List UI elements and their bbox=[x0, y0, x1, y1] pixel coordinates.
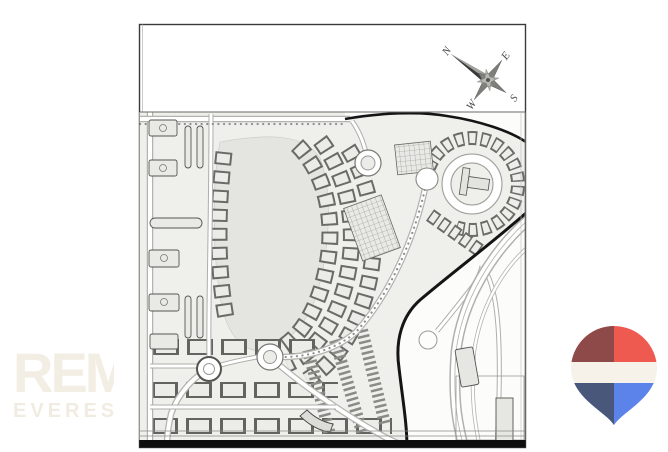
remax-balloon-icon bbox=[566, 322, 662, 428]
plan-bottom-bar bbox=[140, 440, 527, 448]
plan-content bbox=[140, 112, 529, 448]
agency-watermark: REM EVEREST bbox=[13, 350, 114, 422]
balloon-red-shadow bbox=[566, 322, 614, 362]
balloon-white-band bbox=[566, 362, 662, 383]
balloon-blue-shadow bbox=[566, 383, 614, 428]
watermark-agency-text: EVEREST bbox=[13, 400, 114, 422]
cul-de-sac-loop bbox=[442, 154, 502, 214]
watermark-brand-text: REM bbox=[13, 350, 114, 396]
listing-photo: REM EVEREST bbox=[0, 0, 668, 452]
site-plan-image: N E S W bbox=[138, 23, 528, 449]
